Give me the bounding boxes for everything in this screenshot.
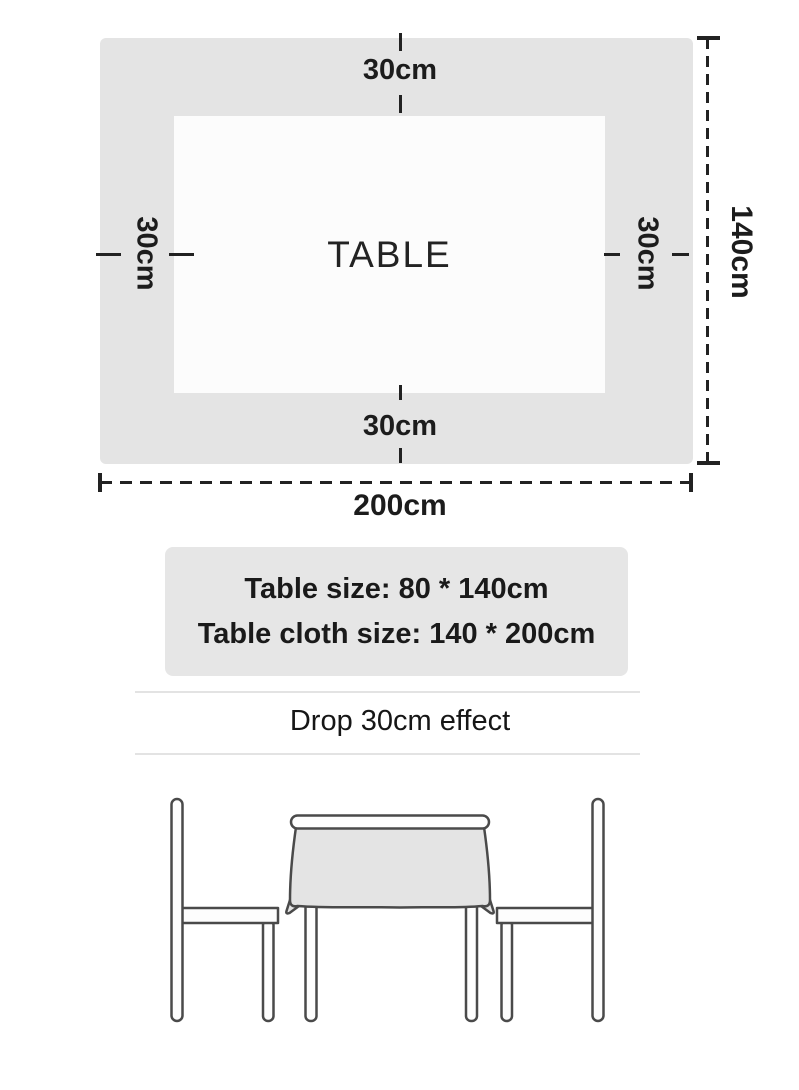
height-dimension-line	[706, 38, 709, 464]
chair-left-front-leg	[263, 920, 274, 1021]
drop-tick-left-inner	[169, 253, 194, 256]
width-dimension-cap-right	[689, 473, 693, 492]
drop-label-bottom: 30cm	[330, 410, 470, 443]
table-size-text: Table size: 80 * 140cm	[244, 567, 548, 612]
dimension-info-box: Table size: 80 * 140cm Table cloth size:…	[165, 547, 628, 676]
divider-bottom	[135, 753, 640, 755]
chair-right-seat	[497, 908, 598, 923]
drop-tick-top-outer	[399, 33, 402, 51]
table-area: TABLE	[174, 116, 605, 393]
cloth-size-text: Table cloth size: 140 * 200cm	[198, 612, 596, 657]
drop-label-top: 30cm	[330, 54, 470, 87]
table-area-label: TABLE	[327, 234, 451, 276]
chair-left	[172, 799, 279, 1021]
drop-label-right: 30cm	[631, 184, 664, 324]
chair-right-front-leg	[502, 920, 513, 1021]
width-dimension-label: 200cm	[300, 489, 500, 523]
drop-tick-bottom-inner	[399, 385, 402, 400]
table-chairs-illustration	[140, 760, 660, 1040]
drop-label-left: 30cm	[130, 184, 163, 324]
tablecloth-drape	[290, 827, 490, 908]
drop-tick-right-inner	[604, 253, 620, 256]
table-leg-left	[306, 893, 317, 1021]
table-with-cloth	[286, 816, 493, 1022]
table-leg-right	[466, 893, 477, 1021]
height-dimension-label: 140cm	[724, 172, 758, 332]
chair-right	[497, 799, 604, 1021]
drop-tick-top-inner	[399, 95, 402, 113]
drop-tick-bottom-outer	[399, 448, 402, 463]
table-top	[291, 816, 489, 829]
height-dimension-cap-bottom	[697, 461, 720, 465]
chair-left-seat	[177, 908, 278, 923]
chair-left-backrest	[172, 799, 183, 1021]
drop-tick-right-outer	[672, 253, 689, 256]
divider-top	[135, 691, 640, 693]
width-dimension-line	[100, 481, 692, 484]
drop-tick-left-outer	[96, 253, 121, 256]
chair-right-backrest	[593, 799, 604, 1021]
product-size-page: TABLE 30cm 30cm 30cm 30cm 140cm 200cm Ta…	[0, 0, 799, 1090]
drop-effect-title: Drop 30cm effect	[200, 705, 600, 738]
